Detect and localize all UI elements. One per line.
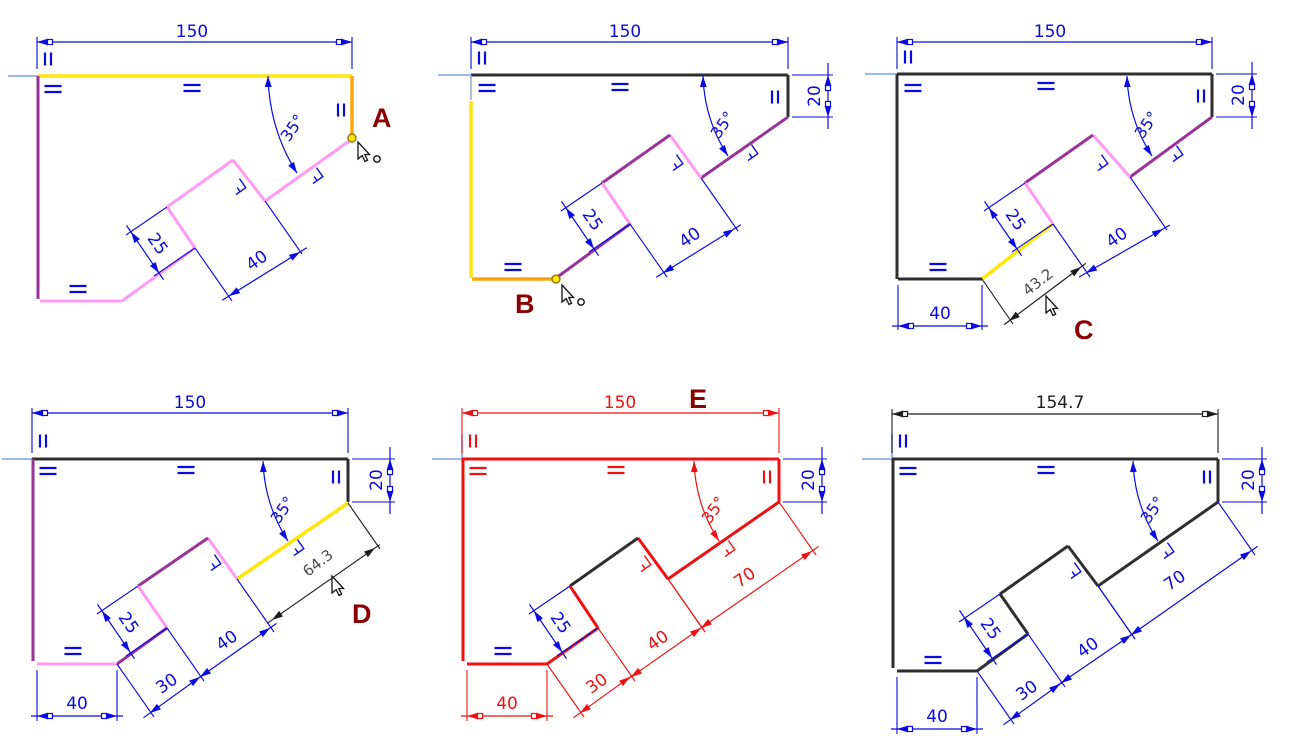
dimension-value: 25 [143, 230, 172, 259]
dimension-value: 154.7 [1036, 393, 1085, 413]
dimension-value: 150 [604, 393, 636, 413]
panel-A: 15035°2540A [8, 22, 392, 301]
dimension-grip-square [43, 411, 48, 416]
glyph-stroke [237, 188, 240, 192]
dimension-arrow-icon [966, 726, 977, 733]
extension-line [982, 279, 1013, 324]
dimension-arrow-icon [1249, 74, 1256, 85]
constraint-equal-icon [178, 467, 195, 473]
dimension-value: 25 [1001, 206, 1030, 235]
sketch-line[interactable] [670, 135, 701, 178]
dimension-20[interactable]: 20 [352, 447, 395, 514]
dimension-arrow-icon [1009, 312, 1020, 321]
glyph-stroke [674, 164, 677, 168]
extension-line [1098, 586, 1135, 639]
constraint-equal-icon [65, 648, 82, 654]
dimension-25[interactable]: 25 [97, 586, 167, 659]
dimension-grip-square [1260, 487, 1265, 492]
dimension-grip-square [826, 86, 831, 91]
dimension-value: 25 [976, 615, 1005, 644]
extension-line [779, 502, 816, 555]
dimension-value: 70 [1161, 567, 1190, 596]
dimension-arrow-icon [701, 619, 712, 628]
sketch-line[interactable] [138, 586, 167, 628]
step-label: D [352, 599, 372, 629]
dimension-150[interactable]: 150 [37, 22, 352, 69]
constraint-equal-icon [45, 86, 62, 92]
dimension-grip-square [48, 40, 53, 45]
dimension-grip-square [1197, 40, 1202, 45]
dimension-150[interactable]: 150 [462, 393, 779, 453]
glyph-stroke [726, 550, 729, 554]
dimension-value: 35° [267, 493, 299, 527]
dimension-arrow-icon [337, 410, 348, 417]
dimension-30[interactable]: 30 [547, 664, 636, 718]
dimension-grip-square [48, 714, 53, 719]
extension-line [1130, 177, 1167, 230]
constraint-parallel-icon [772, 91, 778, 104]
dimension-arrow-icon [989, 208, 998, 219]
dimension-arrow-icon [150, 262, 159, 273]
dimension-40[interactable]: 40 [1053, 177, 1170, 277]
dimension-40[interactable]: 40 [891, 677, 983, 734]
extension-line [1053, 224, 1090, 277]
dimension-value: 20 [1239, 469, 1259, 491]
dimension-arrow-icon [536, 713, 547, 720]
dimension-arrow-icon [897, 726, 908, 733]
dimension-grip-square [1250, 102, 1255, 107]
dimension-arrow-icon [777, 39, 788, 46]
sketch-line[interactable] [167, 207, 195, 248]
sketch-line[interactable] [167, 160, 233, 207]
dimension-arrow-icon [566, 208, 575, 219]
sketch-line[interactable] [570, 586, 598, 628]
dimension-arrow-icon [467, 713, 478, 720]
dimension-arrow-icon [1249, 106, 1256, 117]
constraint-parallel-icon [479, 52, 485, 65]
dimension-40[interactable]: 40 [630, 178, 741, 277]
panel-B: 1502035°2540B [438, 22, 833, 319]
sketch-line[interactable] [1068, 546, 1098, 586]
constraint-equal-icon [184, 85, 201, 91]
dimension-arrow-icon [585, 238, 594, 249]
dimension-35[interactable]: 35° [265, 76, 309, 173]
dimension-25[interactable]: 25 [126, 207, 195, 280]
cursor-pencil-icon [562, 285, 584, 305]
dimension-arrow-icon [1086, 265, 1097, 273]
extension-line [977, 671, 1014, 724]
dimension-arrow-icon [1008, 238, 1017, 249]
sketch-line[interactable] [668, 502, 779, 579]
dimension-arrow-icon [37, 39, 48, 46]
glyph-stroke [314, 177, 317, 181]
constraint-parallel-icon [1204, 471, 1210, 484]
endpoint-marker[interactable] [348, 134, 356, 142]
constraint-parallel-icon [764, 471, 770, 484]
dimension-grip-square [482, 40, 487, 45]
dimension-arrow-icon [1061, 674, 1072, 683]
extension-line [237, 579, 274, 632]
constraint-equal-icon [1038, 467, 1055, 473]
dimension-value: 40 [66, 694, 88, 714]
dimension-grip-square [820, 470, 825, 475]
dimension-value: 20 [805, 85, 825, 107]
dimension-arrow-icon [260, 461, 267, 472]
dimension-value: 35° [707, 108, 739, 142]
dimension-arrow-icon [691, 461, 698, 472]
dimension-arrow-icon [471, 39, 482, 46]
dimension-value: 35° [698, 493, 730, 527]
dimension-arrow-icon [150, 704, 161, 713]
dimension-25[interactable]: 25 [529, 586, 598, 659]
sketch-line[interactable] [602, 183, 630, 224]
dimension-arrow-icon [229, 287, 240, 296]
dimension-arrow-icon [819, 459, 826, 470]
sketch-line[interactable] [1025, 135, 1093, 183]
dimension-40[interactable]: 40 [461, 670, 553, 721]
cad-tutorial-canvas: 15035°2540A1502035°2540B1502035°25404043… [0, 0, 1290, 753]
extension-line [1218, 502, 1255, 555]
dimension-grip-square [826, 102, 831, 107]
endpoint-marker[interactable] [552, 275, 560, 283]
sketch-line[interactable] [1000, 546, 1068, 594]
dimension-30[interactable]: 30 [117, 664, 206, 718]
dimension-arrow-icon [1070, 267, 1081, 276]
dimension-arrow-icon [259, 628, 270, 637]
dimension-1547[interactable]: 154.7 [892, 393, 1218, 453]
dimension-arrow-icon [710, 530, 719, 541]
dimension-arrow-icon [719, 145, 728, 156]
dimension-arrow-icon [964, 617, 973, 628]
dimension-arrow-icon [189, 677, 200, 686]
constraint-equal-icon [70, 286, 87, 292]
dimension-40[interactable]: 40 [31, 670, 123, 721]
dimension-value: 40 [243, 247, 272, 276]
dimension-arrow-icon [1149, 530, 1158, 541]
dimension-arrow-icon [121, 641, 130, 652]
sketch-line[interactable] [1025, 183, 1053, 224]
dimension-arrow-icon [768, 410, 779, 417]
glyph-stroke [642, 565, 645, 569]
dimension-grip-square [908, 40, 913, 45]
constraint-equal-icon [479, 85, 496, 91]
dimension-value: 150 [609, 22, 641, 42]
dimension-arrow-icon [723, 229, 734, 238]
dimension-arrow-icon [279, 530, 288, 541]
dimension-grip-square [962, 727, 967, 732]
extension-line [547, 664, 584, 717]
dimension-grip-square [764, 411, 769, 416]
dimension-arrow-icon [825, 106, 832, 117]
dimension-arrow-icon [801, 551, 812, 560]
dimension-grip-square [967, 324, 972, 329]
extension-line [668, 579, 705, 632]
dimension-arrow-icon [580, 704, 591, 713]
dimension-grip-square [102, 714, 107, 719]
dimension-30[interactable]: 30 [977, 671, 1066, 725]
constraint-equal-icon [608, 467, 625, 473]
dimension-150[interactable]: 150 [471, 22, 788, 69]
cursor-arrow-icon [1046, 296, 1058, 316]
dimension-arrow-icon [1143, 145, 1152, 156]
cursor-arrow-icon [332, 576, 344, 596]
drawing-area: 15035°2540A1502035°2540B1502035°25404043… [0, 0, 1290, 753]
dimension-grip-square [908, 727, 913, 732]
constraint-equal-icon [612, 84, 629, 90]
dimension-value: 25 [114, 609, 143, 638]
glyph-stroke [1165, 552, 1168, 556]
dimension-arrow-icon [288, 162, 297, 173]
dimension-value: 40 [926, 707, 948, 727]
constraint-perpendicular-icon [230, 179, 246, 195]
constraint-equal-icon [900, 468, 917, 474]
constraint-equal-icon [925, 657, 942, 663]
dimension-arrow-icon [898, 323, 909, 330]
dimension-grip-square [337, 40, 342, 45]
dimension-arrow-icon [1240, 551, 1251, 560]
dimension-value: 35° [1137, 493, 1169, 527]
dimension-20[interactable]: 20 [792, 63, 833, 129]
dimension-arrow-icon [341, 39, 352, 46]
dimension-arrow-icon [1130, 461, 1137, 472]
sketch-line[interactable] [638, 538, 668, 579]
dimension-40[interactable]: 40 [1028, 586, 1138, 688]
constraint-equal-icon [905, 85, 922, 91]
dimension-arrow-icon [387, 459, 394, 470]
dimension-grip-square [478, 714, 483, 719]
constraint-perpendicular-icon [667, 155, 683, 171]
dimension-grip-square [473, 411, 478, 416]
extension-line [117, 664, 154, 717]
constraint-perpendicular-icon [205, 555, 221, 571]
panel-D: 1502035°2540304064.3D [2, 393, 395, 721]
dimension-grip-square [909, 324, 914, 329]
dimension-value: 20 [1229, 84, 1249, 106]
dimension-20[interactable]: 20 [783, 447, 827, 514]
dimension-35[interactable]: 35° [700, 76, 738, 156]
dimension-value: 43.2 [1019, 265, 1056, 300]
dimension-grip-square [1260, 470, 1265, 475]
dimension-arrow-icon [32, 410, 43, 417]
extension-line [195, 248, 232, 301]
dimension-line [1124, 546, 1257, 639]
constraint-perpendicular-icon [635, 556, 651, 572]
step-label: E [689, 384, 707, 414]
sketch-line[interactable] [570, 538, 638, 586]
dimension-40[interactable]: 40 [167, 579, 277, 682]
dimension-arrow-icon [534, 611, 543, 622]
dimension-arrow-icon [1207, 411, 1218, 418]
constraint-perpendicular-icon [1158, 543, 1174, 559]
dimension-value: 40 [1103, 224, 1132, 253]
dimension-150[interactable]: 150 [32, 393, 348, 453]
sketch-line[interactable] [208, 538, 237, 579]
dimension-arrow-icon [1201, 39, 1212, 46]
dimension-35[interactable]: 35° [691, 461, 729, 541]
constraint-parallel-icon [470, 435, 476, 448]
dimension-arrow-icon [462, 410, 473, 417]
dimension-value: 35° [277, 111, 309, 145]
dimension-grip-square [1250, 85, 1255, 90]
dimension-grip-square [773, 40, 778, 45]
glyph-stroke [295, 549, 298, 553]
dimension-arrow-icon [1259, 491, 1266, 502]
dimension-grip-square [388, 487, 393, 492]
dimension-arrow-icon [819, 491, 826, 502]
dimension-arrow-icon [983, 647, 992, 658]
dimension-value: 25 [546, 609, 575, 638]
dimension-arrow-icon [553, 641, 562, 652]
dimension-grip-square [333, 411, 338, 416]
panel-C: 1502035°25404043.2C [865, 22, 1257, 345]
sketch-line[interactable] [138, 538, 208, 586]
dimension-432[interactable]: 43.2 [982, 263, 1086, 324]
constraint-parallel-icon [900, 435, 906, 448]
dimension-value: 20 [799, 469, 819, 491]
dimension-line [694, 546, 818, 632]
dimension-20[interactable]: 20 [1222, 447, 1267, 514]
glyph-stroke [749, 154, 752, 158]
extension-line [265, 201, 302, 254]
dimension-70[interactable]: 70 [668, 502, 819, 633]
cursor-pencil-icon [358, 142, 380, 162]
panel-final: 154.72035°2530407040 [862, 393, 1267, 734]
dimension-35[interactable]: 35° [1124, 76, 1162, 156]
dimension-150[interactable]: 150 [897, 22, 1212, 69]
dimension-value: 25 [578, 206, 607, 235]
glyph-stroke [1099, 164, 1102, 168]
dimension-arrow-icon [663, 264, 674, 273]
dimension-25[interactable]: 25 [561, 183, 630, 256]
dimension-value: 70 [731, 564, 760, 593]
dimension-arrow-icon [289, 252, 300, 261]
dimension-arrow-icon [131, 232, 140, 243]
constraint-parallel-icon [333, 471, 339, 484]
dimension-arrow-icon [387, 491, 394, 502]
constraint-parallel-icon [1198, 90, 1204, 103]
dimension-grip-square [820, 487, 825, 492]
dimension-value: 150 [1034, 22, 1066, 42]
dimension-40[interactable]: 40 [598, 579, 708, 682]
dimension-grip-square [1203, 412, 1208, 417]
dimension-40[interactable]: 40 [892, 285, 988, 330]
extension-line [630, 224, 667, 277]
extension-line [1028, 634, 1065, 687]
constraint-parallel-icon [905, 51, 911, 64]
dimension-40[interactable]: 40 [195, 201, 307, 301]
dimension-25[interactable]: 25 [984, 183, 1053, 256]
dimension-arrow-icon [1152, 229, 1163, 237]
dimension-value: 64.3 [299, 546, 336, 581]
sketch-line[interactable] [233, 160, 265, 201]
dimension-value: 40 [496, 694, 518, 714]
extension-line [701, 178, 738, 231]
constraint-parallel-icon [338, 104, 344, 117]
dimension-value: 150 [174, 393, 206, 413]
dimension-value: 40 [929, 304, 951, 324]
panel-E: 1502035°2530407040E [432, 384, 827, 721]
dimension-20[interactable]: 20 [1216, 62, 1257, 129]
dimension-25[interactable]: 25 [959, 594, 1028, 665]
dimension-arrow-icon [825, 75, 832, 86]
constraint-equal-icon [470, 468, 487, 474]
dimension-arrow-icon [272, 611, 283, 620]
constraint-parallel-icon [45, 53, 51, 66]
dimension-arrow-icon [700, 76, 707, 87]
sketch-line[interactable] [265, 139, 352, 201]
dimension-value: 35° [1131, 108, 1163, 142]
dimension-arrow-icon [364, 548, 375, 557]
dimension-arrow-icon [892, 411, 903, 418]
constraint-parallel-icon [40, 435, 46, 448]
dimension-arrow-icon [106, 713, 117, 720]
constraint-equal-icon [1038, 83, 1055, 89]
step-label: A [372, 103, 392, 133]
glyph-stroke [1072, 572, 1075, 576]
glyph-stroke [212, 564, 215, 568]
constraint-perpendicular-icon [1092, 155, 1108, 171]
dimension-35[interactable]: 35° [260, 461, 298, 541]
constraint-perpendicular-icon [1065, 563, 1081, 579]
dimension-arrow-icon [1010, 711, 1021, 720]
sketch-line[interactable] [602, 135, 670, 183]
extension-line [598, 628, 635, 681]
dimension-arrow-icon [1131, 626, 1142, 635]
constraint-equal-icon [505, 264, 522, 270]
dimension-value: 150 [176, 22, 208, 42]
step-label: B [515, 289, 535, 319]
dimension-grip-square [532, 714, 537, 719]
dimension-value: 20 [367, 469, 387, 491]
glyph-stroke [1174, 155, 1177, 159]
dimension-arrow-icon [1259, 459, 1266, 470]
sketch-line[interactable] [237, 503, 348, 579]
dimension-arrow-icon [37, 713, 48, 720]
constraint-equal-icon [930, 264, 947, 270]
dimension-value: 40 [676, 224, 705, 253]
dimension-arrow-icon [631, 668, 642, 677]
dimension-arrow-icon [971, 323, 982, 330]
dimension-arrow-icon [1124, 76, 1131, 87]
dimension-arrow-icon [897, 39, 908, 46]
dimension-arrow-icon [102, 611, 111, 622]
step-label: C [1074, 315, 1094, 345]
constraint-equal-icon [495, 648, 512, 654]
dimension-grip-square [388, 470, 393, 475]
dimension-35[interactable]: 35° [1130, 461, 1168, 541]
constraint-equal-icon [40, 468, 57, 474]
extension-line [348, 503, 380, 549]
sketch-line[interactable] [1000, 594, 1028, 634]
dimension-grip-square [903, 412, 908, 417]
